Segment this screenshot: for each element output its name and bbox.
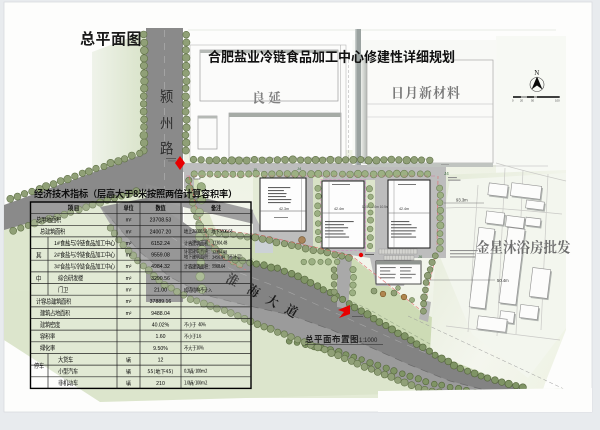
svg-text:20: 20 — [520, 99, 524, 103]
svg-text:23708.53: 23708.53 — [150, 218, 172, 224]
svg-text:m²: m² — [126, 229, 132, 235]
svg-text:1.60: 1.60 — [155, 334, 165, 340]
svg-text:6152.24: 6152.24 — [151, 241, 170, 247]
svg-text:21.00: 21.00 — [154, 288, 167, 294]
svg-text:93.3m: 93.3m — [456, 198, 468, 203]
svg-text:9488.04: 9488.04 — [151, 311, 170, 317]
svg-text:24007.20: 24007.20 — [150, 229, 172, 235]
svg-text:N: N — [534, 69, 539, 77]
svg-text:12: 12 — [158, 358, 164, 364]
svg-text:m²: m² — [126, 288, 132, 294]
svg-text:4984.32: 4984.32 — [151, 264, 170, 270]
svg-text:m²: m² — [126, 299, 132, 305]
svg-text:J4: J4 — [444, 171, 449, 176]
svg-text:100: 100 — [555, 99, 560, 103]
svg-text:50.4m: 50.4m — [497, 278, 509, 283]
svg-text:210: 210 — [156, 381, 165, 387]
svg-text:m²: m² — [126, 253, 132, 259]
svg-text:m²: m² — [126, 218, 132, 224]
svg-text:m²: m² — [126, 264, 132, 270]
svg-text:10.5m 9.0m 10.5m: 10.5m 9.0m 10.5m — [362, 205, 389, 209]
svg-text:40.02%: 40.02% — [152, 323, 170, 329]
svg-text:m²: m² — [126, 311, 132, 317]
svg-text:42.4m: 42.4m — [399, 207, 409, 211]
svg-text:42.4m: 42.4m — [334, 207, 344, 211]
svg-text:42.3m: 42.3m — [279, 207, 289, 211]
svg-text:m²: m² — [126, 276, 132, 282]
svg-text:1:1000: 1:1000 — [359, 338, 378, 344]
svg-text:37889.16: 37889.16 — [150, 299, 172, 305]
svg-text:9559.08: 9559.08 — [151, 253, 170, 259]
svg-text:50: 50 — [531, 99, 535, 103]
svg-text:m²: m² — [126, 241, 132, 247]
svg-text:3290.56: 3290.56 — [151, 276, 170, 282]
svg-text:9.50%: 9.50% — [153, 346, 168, 352]
